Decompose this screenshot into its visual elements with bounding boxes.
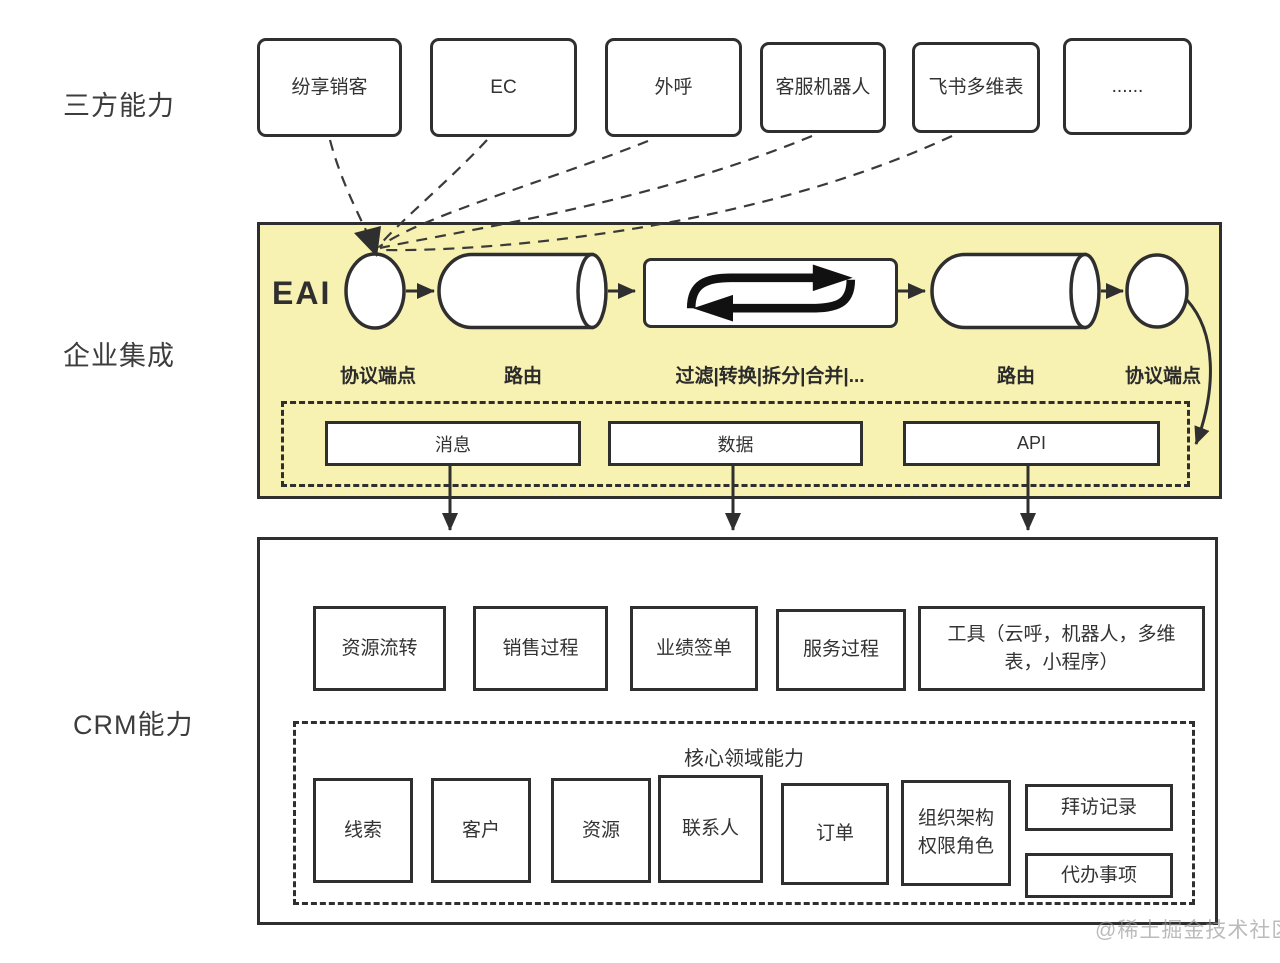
third-party-box-more: ...... bbox=[1063, 38, 1192, 135]
core-item-box: 客户 bbox=[431, 778, 531, 883]
channels-dashed-box: 消息 数据 API bbox=[281, 401, 1190, 487]
stage-label-route-left: 路由 bbox=[504, 361, 542, 388]
stage-label-protocol-endpoint-right: 协议端点 bbox=[1125, 361, 1201, 388]
crm-panel: 资源流转 销售过程 业绩签单 服务过程 工具（云呼，机器人，多维表，小程序） 核… bbox=[257, 537, 1218, 925]
watermark: @稀土掘金技术社区 bbox=[1095, 914, 1280, 944]
third-party-box: 客服机器人 bbox=[760, 42, 886, 133]
core-item-box: 拜访记录 bbox=[1025, 784, 1173, 831]
core-domain-title: 核心领域能力 bbox=[296, 742, 1192, 771]
stage-label-protocol-endpoint-left: 协议端点 bbox=[340, 361, 416, 388]
channel-box-data: 数据 bbox=[608, 421, 863, 466]
crm-module-box: 销售过程 bbox=[473, 606, 608, 691]
filter-transform-box bbox=[643, 258, 898, 328]
third-party-box: 纷享销客 bbox=[257, 38, 402, 137]
channel-box-api: API bbox=[903, 421, 1160, 466]
loop-arrows-icon bbox=[657, 264, 885, 322]
core-item-box: 资源 bbox=[551, 778, 651, 883]
third-party-box: 飞书多维表 bbox=[912, 42, 1040, 133]
label-third-party-capabilities: 三方能力 bbox=[63, 84, 175, 123]
crm-module-box: 业绩签单 bbox=[630, 606, 758, 691]
third-party-box: 外呼 bbox=[605, 38, 742, 137]
channel-box-message: 消息 bbox=[325, 421, 581, 466]
architecture-diagram: 三方能力 企业集成 CRM能力 纷享销客 EC 外呼 客服机器人 飞书多维表 .… bbox=[0, 0, 1280, 963]
crm-module-box: 资源流转 bbox=[313, 606, 446, 691]
eai-title: EAI bbox=[272, 275, 331, 312]
core-item-box: 联系人 bbox=[658, 775, 763, 883]
core-domain-dashed-box: 核心领域能力 线索 客户 资源 联系人 订单 组织架构权限角色 拜访记录 代办事… bbox=[293, 721, 1195, 905]
core-item-box: 订单 bbox=[781, 783, 889, 885]
label-crm-capabilities: CRM能力 bbox=[73, 703, 194, 742]
crm-module-box: 服务过程 bbox=[776, 609, 906, 691]
core-item-box: 组织架构权限角色 bbox=[901, 780, 1011, 886]
stage-label-route-right: 路由 bbox=[997, 361, 1035, 388]
eai-panel: EAI 协议端点 路由 过滤|转换|拆分|合并|... 路由 协议端点 消息 数… bbox=[257, 222, 1222, 499]
stage-label-filter-transform: 过滤|转换|拆分|合并|... bbox=[675, 361, 864, 388]
third-party-box: EC bbox=[430, 38, 577, 137]
label-enterprise-integration: 企业集成 bbox=[63, 334, 175, 373]
core-item-box: 代办事项 bbox=[1025, 853, 1173, 898]
crm-module-box-tools: 工具（云呼，机器人，多维表，小程序） bbox=[918, 606, 1205, 691]
core-item-box: 线索 bbox=[313, 778, 413, 883]
